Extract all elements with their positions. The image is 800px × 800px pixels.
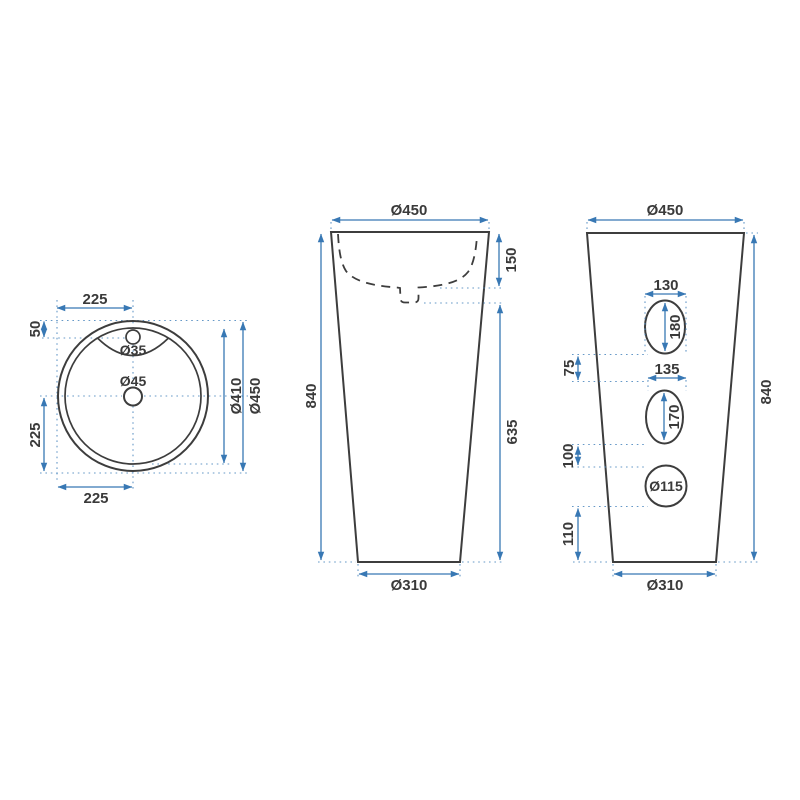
dim-label-faucet-offset: 50 [27, 321, 44, 338]
dim-label-hole1-height: 180 [667, 314, 684, 339]
faucet-hole-label: Ø35 [120, 342, 147, 358]
dim-label-bottom-diameter: Ø310 [647, 577, 684, 594]
technical-drawing-canvas: 225 50 225 225 Ø410 Ø450 Ø35 Ø45 Ø450 84… [0, 0, 800, 800]
dim-label-basin-depth: 150 [503, 247, 520, 272]
dim-label-top-diameter: Ø450 [647, 202, 684, 219]
dim-label-total-height: 840 [758, 379, 775, 404]
drain-hole-label: Ø45 [120, 373, 147, 389]
dim-label-gap1: 75 [561, 360, 578, 377]
dim-label-total-height: 840 [303, 383, 320, 408]
front-view: Ø450 840 150 635 Ø310 [303, 202, 521, 594]
hole3-diameter-label: Ø115 [649, 478, 683, 494]
dim-label-hole2-width: 135 [654, 361, 679, 378]
dim-label-gap2: 100 [560, 443, 577, 468]
dim-label-left-height: 225 [27, 422, 44, 447]
dim-label-bottom-diameter: Ø310 [391, 577, 428, 594]
dim-label-outer-diameter: Ø450 [247, 378, 264, 415]
dim-label-top-width: 225 [82, 291, 107, 308]
back-view: Ø450 130 180 75 135 170 840 100 Ø115 110… [560, 202, 775, 594]
dim-label-gap3: 110 [560, 522, 577, 546]
washbasin-dimension-drawing: 225 50 225 225 Ø410 Ø450 Ø35 Ø45 Ø450 84… [0, 0, 800, 800]
top-view: 225 50 225 225 Ø410 Ø450 Ø35 Ø45 [27, 291, 264, 507]
dim-label-lower-height: 635 [504, 419, 521, 444]
dim-label-hole1-width: 130 [653, 277, 678, 294]
dim-label-hole2-height: 170 [666, 404, 683, 429]
drain-hole [124, 388, 142, 406]
basin-depth-dashed-line [338, 234, 477, 303]
dim-label-bottom-width: 225 [83, 490, 108, 507]
front-outline [331, 232, 489, 562]
dim-label-top-diameter: Ø450 [391, 202, 428, 219]
